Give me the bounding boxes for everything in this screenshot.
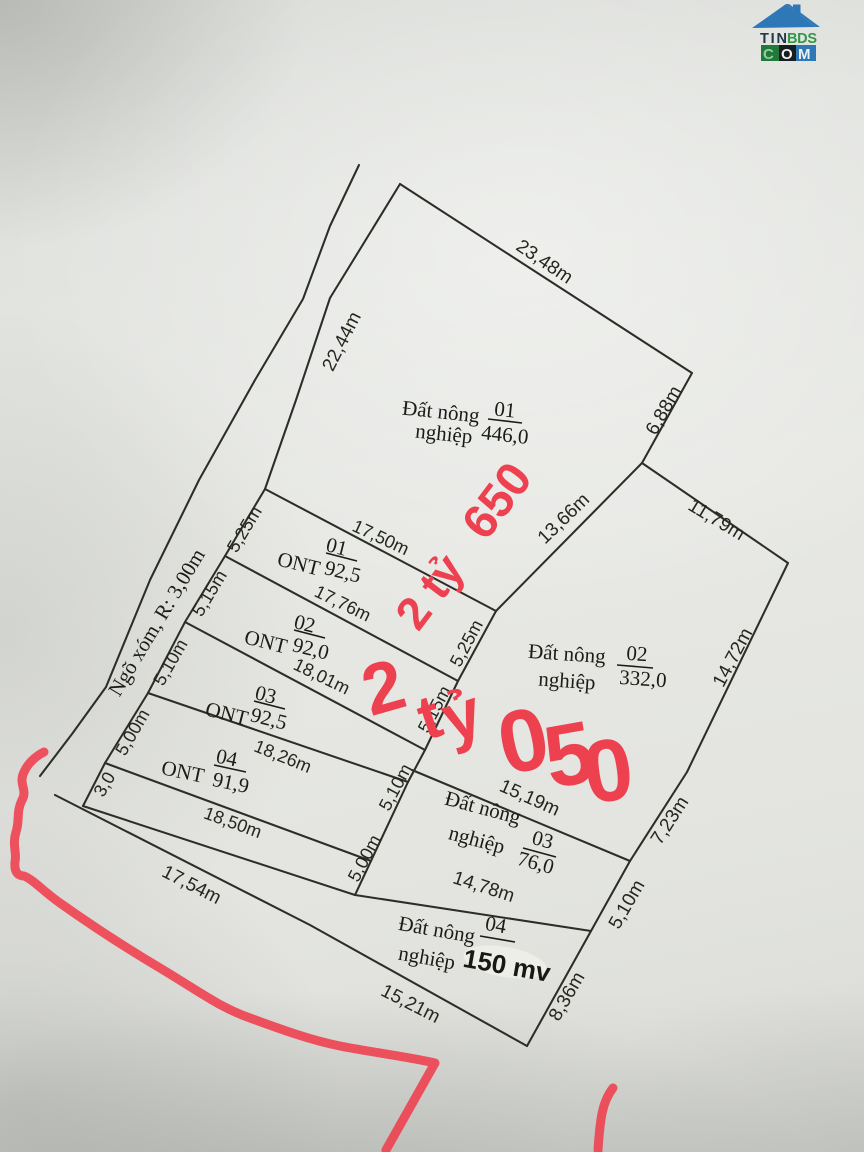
svg-text:ONT: ONT (159, 755, 206, 787)
svg-text:ONT: ONT (275, 547, 323, 581)
svg-text:Đất nông: Đất nông (527, 639, 607, 668)
svg-text:TIN: TIN (760, 31, 787, 47)
svg-text:5,00m: 5,00m (344, 831, 385, 885)
svg-text:18,26m: 18,26m (251, 736, 314, 777)
svg-text:04: 04 (483, 911, 508, 938)
svg-text:O: O (781, 46, 793, 63)
svg-text:0: 0 (577, 718, 639, 823)
svg-text:M: M (798, 46, 811, 63)
svg-text:01: 01 (493, 397, 516, 423)
svg-text:14,72m: 14,72m (709, 625, 757, 691)
svg-text:nghiệp: nghiệp (397, 941, 457, 975)
svg-text:92,5: 92,5 (322, 555, 363, 587)
svg-text:5,25m: 5,25m (446, 616, 487, 670)
svg-text:nghiệp: nghiệp (414, 419, 473, 449)
svg-text:nghiệp: nghiệp (538, 667, 597, 695)
svg-text:02: 02 (626, 641, 649, 666)
svg-text:150 mv: 150 mv (461, 943, 554, 988)
svg-text:5,10m: 5,10m (605, 877, 650, 933)
svg-text:8,36m: 8,36m (545, 969, 590, 1025)
svg-text:7,23m: 7,23m (647, 793, 693, 849)
svg-text:2: 2 (353, 644, 414, 732)
svg-text:332,0: 332,0 (619, 665, 668, 692)
svg-text:446,0: 446,0 (480, 420, 529, 449)
svg-text:18,50m: 18,50m (201, 803, 264, 842)
svg-text:C: C (763, 46, 774, 63)
svg-text:ONT: ONT (203, 697, 251, 731)
svg-text:5,10m: 5,10m (375, 760, 416, 814)
svg-text:15,21m: 15,21m (377, 980, 443, 1027)
svg-text:6,88m: 6,88m (642, 383, 687, 439)
svg-text:ONT: ONT (242, 625, 290, 659)
svg-text:5,25m: 5,25m (223, 503, 266, 556)
svg-text:14,78m: 14,78m (450, 867, 517, 907)
svg-text:nghiệp: nghiệp (446, 821, 507, 859)
svg-text:BDS: BDS (787, 31, 817, 47)
svg-text:5,00m: 5,00m (111, 706, 153, 759)
svg-text:650: 650 (452, 453, 543, 549)
svg-text:22,44m: 22,44m (318, 309, 365, 375)
svg-text:11,79m: 11,79m (684, 495, 748, 545)
svg-text:3,0: 3,0 (89, 768, 119, 800)
svg-text:17,54m: 17,54m (158, 861, 224, 908)
svg-text:13,66m: 13,66m (534, 489, 594, 548)
svg-text:17,50m: 17,50m (349, 516, 412, 560)
svg-text:2 tỷ: 2 tỷ (385, 544, 474, 639)
